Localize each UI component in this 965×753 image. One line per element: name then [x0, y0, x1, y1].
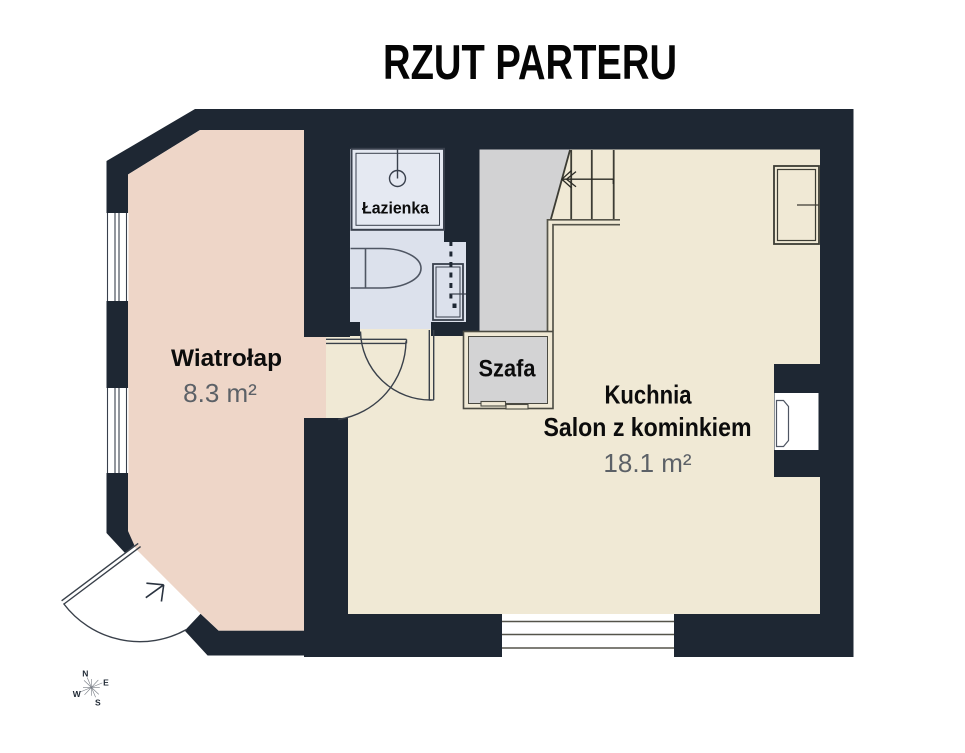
svg-text:E: E: [103, 678, 109, 688]
svg-text:S: S: [95, 698, 101, 708]
svg-text:8.3 m²: 8.3 m²: [183, 378, 257, 408]
svg-text:Łazienka: Łazienka: [362, 199, 430, 218]
svg-text:Wiatrołap: Wiatrołap: [171, 345, 282, 372]
svg-text:Szafa: Szafa: [479, 356, 537, 383]
svg-text:N: N: [82, 669, 88, 679]
svg-text:W: W: [73, 689, 82, 699]
svg-text:Salon z kominkiem: Salon z kominkiem: [544, 412, 752, 442]
svg-text:18.1 m²: 18.1 m²: [603, 448, 691, 478]
svg-text:RZUT PARTERU: RZUT PARTERU: [383, 36, 677, 90]
svg-text:Kuchnia: Kuchnia: [605, 380, 692, 410]
